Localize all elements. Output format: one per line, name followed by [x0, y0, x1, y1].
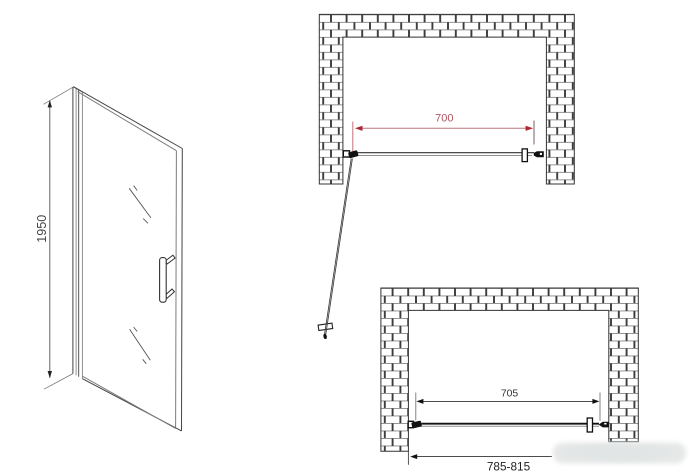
svg-text:1950: 1950	[35, 215, 49, 243]
svg-text:705: 705	[501, 388, 519, 399]
svg-text:785-815: 785-815	[487, 459, 531, 473]
svg-text:700: 700	[435, 113, 453, 125]
